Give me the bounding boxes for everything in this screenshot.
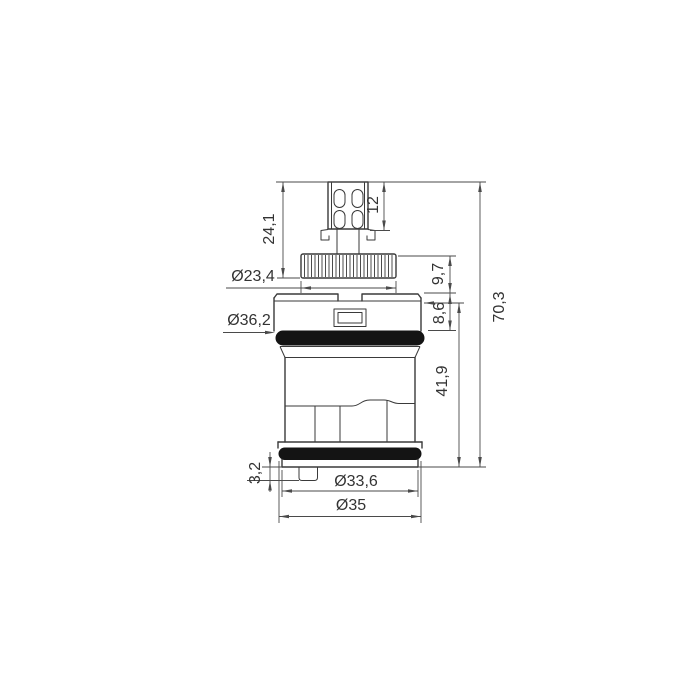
dim-label-total-height: 70,3: [491, 291, 508, 322]
stem-hook-left: [321, 230, 329, 241]
body: [278, 347, 422, 449]
dim-label-base-inner-diameter: Ø33,6: [334, 473, 378, 490]
stem-hole: [334, 190, 345, 208]
stem: [321, 182, 375, 254]
part-view: [274, 182, 424, 481]
spline-ribs: [305, 255, 393, 277]
cartridge-technical-drawing: 24,1 12 Ø23,4 9,7: [0, 0, 700, 700]
cap-window-outer: [334, 309, 366, 327]
dim-label-head-oring-diameter: Ø36,2: [227, 312, 271, 329]
body-chamfer-left: [280, 347, 285, 358]
dim-base-inner-diameter: Ø33,6: [282, 470, 418, 497]
dim-label-cap-height: 8,6: [431, 302, 448, 324]
body-parting-line: [285, 400, 415, 406]
upper-oring: [276, 331, 424, 345]
dim-head-oring-diameter: Ø36,2: [223, 312, 275, 334]
dim-body-height: 41,9: [424, 301, 464, 467]
dim-stem-height: 24,1: [261, 182, 300, 278]
cap-window-inner: [338, 313, 362, 324]
dimensions: 24,1 12 Ø23,4 9,7: [223, 182, 508, 523]
dim-spline-diameter: Ø23,4: [226, 268, 396, 293]
dim-label-stem-height: 24,1: [261, 213, 278, 244]
stem-hook-right: [367, 230, 375, 241]
drawing-canvas: 24,1 12 Ø23,4 9,7: [0, 0, 700, 700]
dim-label-body-height: 41,9: [434, 365, 451, 396]
cap: [274, 294, 421, 331]
dim-stem-slot-height: 12: [365, 182, 390, 231]
stem-hole: [334, 211, 345, 229]
spline-collar: [301, 254, 396, 278]
dim-base-outer-diameter: Ø35: [279, 461, 421, 523]
cap-top-edge: [274, 294, 421, 301]
dim-label-spline-height: 9,7: [430, 263, 447, 285]
body-chamfer-right: [415, 347, 420, 358]
dim-label-foot-tab-height: 3,2: [247, 462, 264, 484]
dim-total-height: 70,3: [478, 182, 508, 467]
base-tab: [299, 467, 318, 481]
lower-oring: [279, 448, 421, 460]
stem-hole: [352, 211, 363, 229]
dim-cap-height: 8,6: [428, 293, 456, 331]
dim-label-stem-slot-height: 12: [365, 196, 382, 214]
stem-hole: [352, 190, 363, 208]
dim-spline-height: 9,7: [398, 256, 456, 293]
dim-label-base-outer-diameter: Ø35: [336, 497, 366, 514]
dim-label-spline-diameter: Ø23,4: [231, 268, 275, 285]
